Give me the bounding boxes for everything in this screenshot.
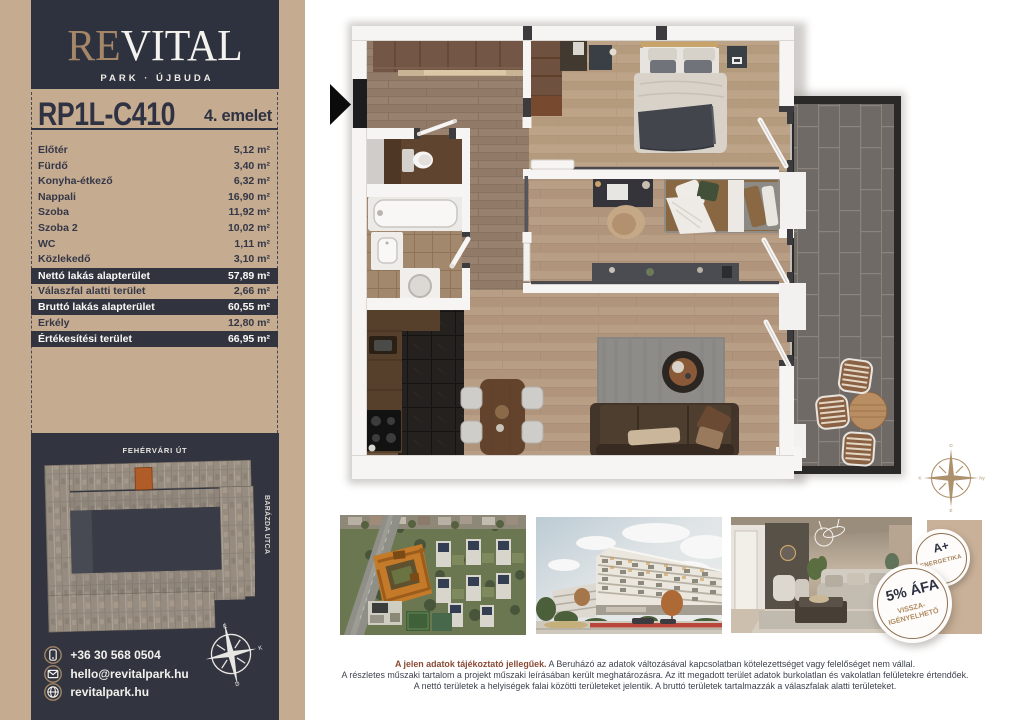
svg-text:É: É [222,623,227,631]
svg-text:É: É [949,507,952,513]
svg-text:K: K [918,476,921,481]
svg-text:Ny: Ny [979,476,985,481]
svg-text:D: D [949,443,953,448]
svg-text:D: D [235,681,241,688]
svg-text:K: K [258,645,263,652]
